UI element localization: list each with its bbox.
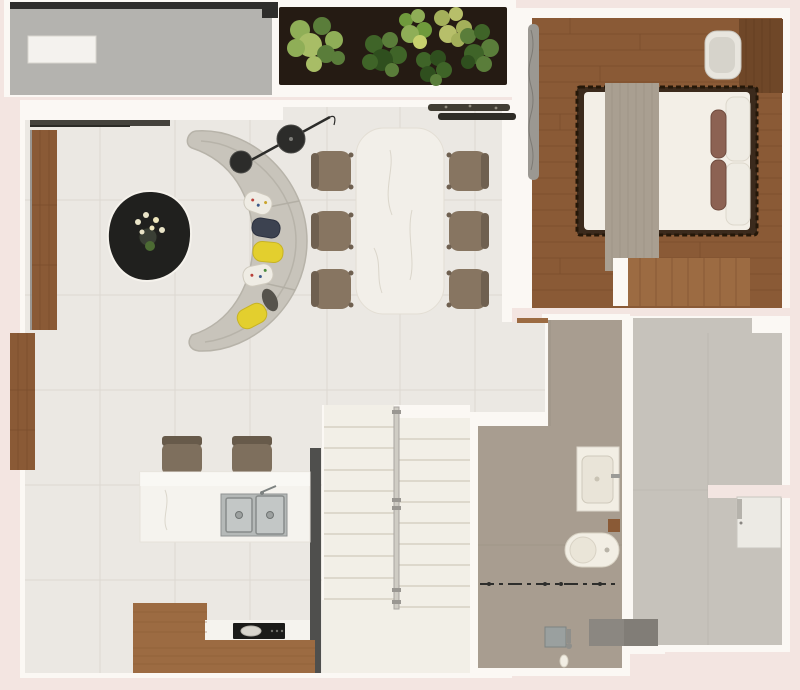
sink-drain bbox=[236, 512, 243, 519]
dining-chair bbox=[311, 269, 354, 309]
bed-pillow-brown bbox=[711, 110, 726, 158]
wardrobe bbox=[628, 258, 750, 306]
dining-chairs-left bbox=[311, 151, 354, 309]
stair-flight-left bbox=[324, 405, 394, 600]
toilet-bowl bbox=[570, 537, 596, 563]
dining-chair bbox=[311, 151, 354, 191]
sink-drain bbox=[267, 512, 274, 519]
dining-chair bbox=[311, 211, 354, 251]
stair-partition-wall bbox=[310, 448, 321, 673]
dining-table bbox=[356, 128, 444, 314]
bar-stool bbox=[162, 436, 202, 474]
sideboard-cabinet-upper bbox=[30, 130, 57, 330]
bed-pillow-brown bbox=[711, 160, 726, 210]
railing-post bbox=[262, 2, 278, 18]
floor-plan-canvas bbox=[0, 0, 800, 690]
balcony bbox=[10, 2, 278, 95]
coffee-table-group bbox=[108, 191, 191, 281]
dining-chair bbox=[447, 269, 490, 309]
shower-drain bbox=[545, 627, 566, 647]
balcony-bench bbox=[28, 36, 96, 63]
bed-runner bbox=[605, 83, 659, 271]
floor-plan bbox=[0, 0, 800, 690]
balcony-railing bbox=[10, 2, 278, 9]
door-hinge bbox=[737, 499, 742, 519]
dining-chairs-right bbox=[447, 151, 490, 309]
stair-flight-right bbox=[398, 418, 470, 608]
basin-faucet bbox=[611, 474, 620, 478]
sideboard-cabinet-lower bbox=[10, 333, 35, 470]
door-handle bbox=[740, 522, 743, 525]
dining-chair bbox=[447, 211, 490, 251]
staircase bbox=[322, 405, 470, 673]
washbasin bbox=[577, 447, 620, 511]
hand-shower bbox=[567, 629, 571, 643]
desk-chair-seat bbox=[709, 37, 735, 73]
lamp-bulb bbox=[289, 137, 293, 141]
shower-head bbox=[566, 643, 572, 649]
entry-mat bbox=[589, 619, 658, 646]
terrace-door bbox=[737, 497, 781, 548]
door-threshold bbox=[517, 318, 548, 323]
bedroom-curtain bbox=[528, 24, 539, 180]
bed-pillow-white bbox=[726, 97, 750, 161]
bedroom-door-opening bbox=[613, 258, 628, 306]
door-recess-wall bbox=[708, 485, 800, 498]
terrace bbox=[633, 318, 800, 645]
basin-drain bbox=[595, 477, 600, 482]
cooktop-dish bbox=[241, 626, 261, 636]
window-frame-shadow bbox=[30, 125, 130, 127]
dining-chair bbox=[447, 151, 490, 191]
bar-stool bbox=[232, 436, 272, 474]
double-sink bbox=[221, 486, 287, 536]
bedroom bbox=[517, 18, 783, 323]
stair-landing bbox=[322, 600, 470, 673]
planter-box bbox=[279, 7, 507, 86]
bed-pillow-white bbox=[726, 163, 750, 225]
bath-accessory bbox=[560, 655, 568, 667]
toilet-shelf bbox=[608, 519, 620, 532]
flush-button bbox=[605, 548, 610, 553]
lamp-shade-small bbox=[230, 151, 252, 173]
island-edge-highlight bbox=[140, 472, 310, 486]
